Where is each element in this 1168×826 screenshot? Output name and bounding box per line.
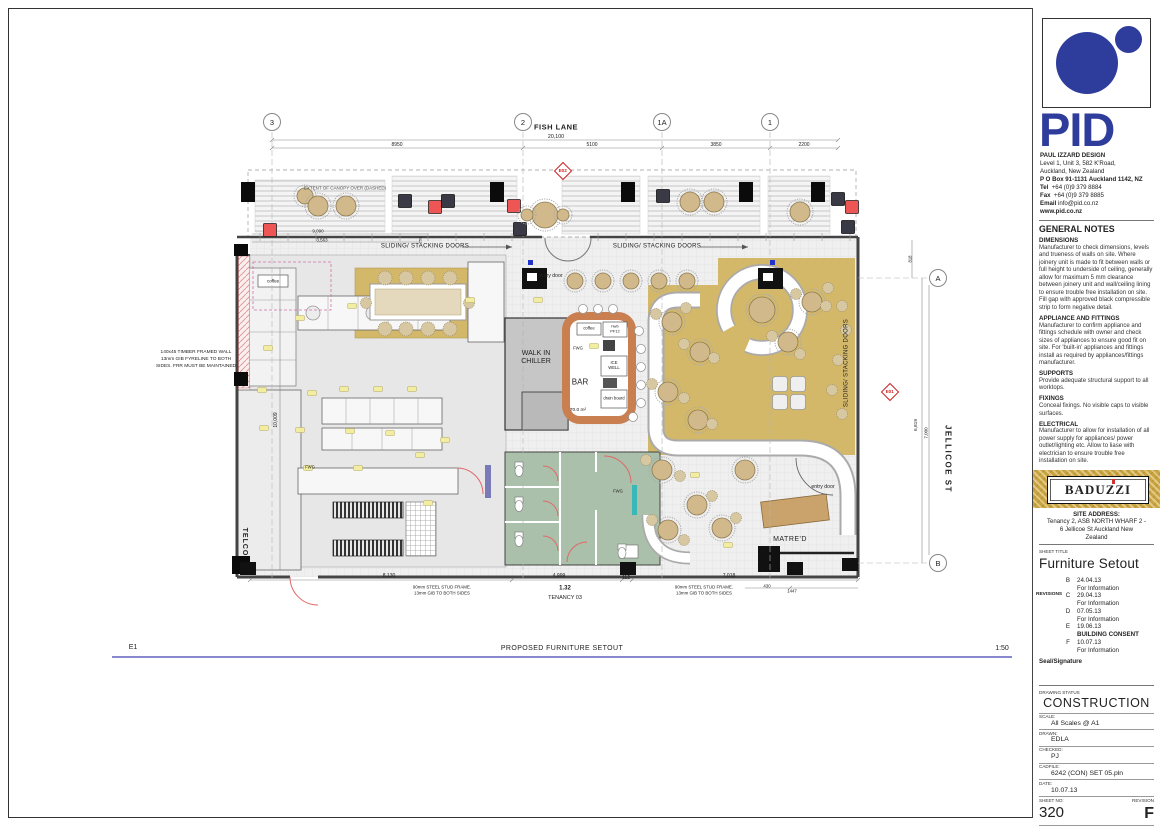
table: [802, 292, 822, 312]
toilet: [618, 548, 626, 559]
fwg-label-2: FWG: [305, 466, 315, 471]
tenancy-name: TENANCY 03: [548, 595, 582, 601]
equipment-tag: [441, 438, 450, 443]
chair: [421, 322, 435, 336]
equipment-tag: [416, 453, 425, 458]
entry-door-label-2: entry door: [810, 484, 836, 490]
seal-label: Seal/Signature: [1033, 654, 1160, 666]
hwb-label: hwb PF12: [607, 324, 624, 333]
grid-bubble-a: A: [929, 269, 947, 287]
stool-red: [264, 224, 277, 237]
stool-dark: [399, 195, 412, 208]
equipment-tag: [308, 391, 317, 396]
telco-label: TELCO: [240, 528, 248, 557]
table: [336, 196, 356, 216]
equipment-tag: [590, 344, 599, 349]
chair: [679, 339, 690, 350]
meta-cadfile: CADFILE:6242 (CON) SET 05.pln: [1039, 763, 1154, 780]
equipment-tag: [691, 473, 700, 478]
drain-board-label: drain board: [603, 397, 625, 402]
fwg-label-3: FWG: [613, 490, 623, 495]
grid-bubble-1: 1: [761, 113, 779, 131]
stool-dark: [442, 195, 455, 208]
dim-bottom-2: 4,999: [553, 574, 566, 580]
revisions-label: REVISIONS: [1036, 592, 1062, 598]
firm-details: PAUL IZZARD DESIGN Level 1, Unit 3, 582 …: [1033, 151, 1160, 216]
table: [658, 382, 678, 402]
grid-bubble-2: 2: [514, 113, 532, 131]
sliding-doors-label-2: SLIDING/ STACKING DOORS: [613, 243, 701, 250]
dim-top-seg2: 5100: [586, 143, 597, 149]
equipment-tag: [354, 466, 363, 471]
revisions: REVISIONS B24.04.13For Information C29.0…: [1033, 575, 1160, 655]
equipment-tag: [296, 428, 305, 433]
stool-red: [508, 200, 521, 213]
entry-door-label-1: entry door: [538, 273, 564, 279]
chair: [791, 289, 802, 300]
revision-row: D07.05.13For Information: [1059, 608, 1156, 624]
table: [521, 209, 533, 221]
stool-dark: [514, 223, 527, 236]
coffee-label-bar: coffee: [583, 327, 594, 332]
equipment-tag: [466, 298, 475, 303]
bar-area-label: 70.0 m²: [570, 408, 586, 414]
dim-overall-top: 20,100: [548, 134, 564, 140]
chair: [707, 491, 718, 502]
firm-name: PAUL IZZARD DESIGN: [1040, 152, 1153, 160]
column: [621, 182, 635, 202]
divider: [1039, 220, 1154, 221]
chair: [731, 513, 742, 524]
stool-dark: [842, 221, 855, 234]
square-seat: [773, 395, 788, 410]
dim-right-a: 818: [909, 256, 914, 263]
wall-marker: [770, 260, 775, 265]
table: [687, 495, 707, 515]
seal-space: [1033, 666, 1160, 682]
column: [739, 182, 753, 202]
square-seat: [791, 395, 806, 410]
note-body: Manufacturer to allow for installation o…: [1039, 428, 1154, 466]
chair: [399, 322, 413, 336]
stool-dark: [832, 193, 845, 206]
chair: [767, 331, 778, 342]
table: [651, 273, 667, 289]
chair: [647, 379, 658, 390]
coffee-label-kitchen: coffee: [267, 278, 279, 283]
pid-logo-icon: [1042, 18, 1151, 108]
note-heading: APPLIANCE AND FITTINGS: [1039, 315, 1154, 323]
chair: [709, 353, 720, 364]
chair: [823, 283, 834, 294]
dim-inner-small: 250: [419, 237, 424, 244]
chair: [647, 515, 658, 526]
note-heading: ELECTRICAL: [1039, 421, 1154, 429]
site-address-label: SITE ADDRESS:: [1039, 511, 1154, 519]
drawing-sheet: 3 2 1A 1 A B E02 E01 FISH LANE 20,100 89…: [0, 0, 1168, 826]
stool-red: [429, 201, 442, 214]
square-seat: [791, 377, 806, 392]
table: [778, 332, 798, 352]
bar-stool: [637, 363, 646, 372]
column: [240, 562, 256, 575]
revision-row: C29.04.13For Information: [1059, 592, 1156, 608]
toilet: [515, 466, 523, 477]
sliding-doors-label-1: SLIDING/ STACKING DOORS: [381, 243, 469, 250]
bar-stool: [629, 413, 638, 422]
bar-stool: [635, 327, 644, 336]
table: [712, 518, 732, 538]
chair: [827, 385, 838, 396]
equipment-tag: [724, 543, 733, 548]
tenancy-number: 1.32: [559, 585, 571, 592]
divider: [1039, 544, 1154, 545]
firm-tel: Tel +64 (0)9 379 8884: [1040, 184, 1153, 192]
site-address: SITE ADDRESS: Tenancy 2, ASB NORTH WHARF…: [1033, 508, 1160, 541]
square-seat: [773, 377, 788, 392]
steel-stud-note-2a: 90mm STEEL STUD FRAME.: [675, 584, 733, 589]
general-notes: GENERAL NOTES DIMENSIONS Manufacturer to…: [1033, 224, 1160, 466]
timber-wall-note-2: 13mm GIB FYRELINE TO BOTH: [161, 357, 231, 363]
column: [811, 182, 825, 202]
dim-bottom-1: 8,130: [383, 574, 396, 580]
drawing-ref: E1: [129, 644, 138, 652]
site-address-line: Zealand: [1039, 534, 1154, 542]
chair: [837, 301, 848, 312]
stool-red: [846, 201, 859, 214]
table: [690, 342, 710, 362]
matred-label: MATRE'D: [773, 536, 807, 544]
column: [241, 182, 255, 202]
table: [567, 273, 583, 289]
chair: [443, 322, 457, 336]
walk-in-chiller-label: WALK IN CHILLER: [507, 350, 565, 367]
equipment-tag: [408, 387, 417, 392]
site-address-line: 6 Jellicoe St Auckland New: [1039, 526, 1154, 534]
equipment-tag: [260, 426, 269, 431]
general-notes-title: GENERAL NOTES: [1039, 224, 1154, 235]
bar-stool: [594, 305, 603, 314]
steel-stud-note-2b: 13mm GIB TO BOTH SIDES: [676, 590, 732, 595]
chair: [681, 303, 692, 314]
meta-checked: CHECKED:PJ: [1039, 746, 1154, 763]
chair: [821, 301, 832, 312]
dim-top-seg1: 8950: [391, 143, 402, 149]
table: [662, 312, 682, 332]
divider: [1039, 685, 1154, 686]
dim-right-c: 7,000: [923, 427, 928, 438]
sheet-title-label: SHEET TITLE: [1033, 548, 1160, 555]
steel-stud-note-1a: 90mm STEEL STUD FRAME.: [413, 584, 471, 589]
note-heading: SUPPORTS: [1039, 370, 1154, 378]
canopy-note: EXTENT OF CANOPY OVER (DASHED): [304, 185, 386, 190]
street-label-fish-lane: FISH LANE: [534, 124, 578, 133]
timber-wall-note-3: SIDES. FRR MUST BE MAINTAINED: [156, 364, 236, 370]
ice-well-label: ICE WELL: [605, 361, 623, 371]
equipment-tag: [346, 429, 355, 434]
table: [679, 273, 695, 289]
baduzzi-logo-band: BADUZZI: [1033, 470, 1160, 508]
chair: [833, 355, 844, 366]
title-block: PID PAUL IZZARD DESIGN Level 1, Unit 3, …: [1032, 8, 1160, 818]
chair: [443, 271, 457, 285]
status-label: DRAWING STATUS: [1033, 689, 1160, 696]
equipment-tag: [296, 316, 305, 321]
wall-marker: [528, 260, 533, 265]
site-address-line: Tenancy 2, ASB NORTH WHARF 2 -: [1039, 518, 1154, 526]
equipment-tag: [264, 346, 273, 351]
chair: [399, 271, 413, 285]
titlebar-rule: [112, 656, 1012, 658]
chair: [837, 409, 848, 420]
chair: [378, 322, 392, 336]
pid-logo-text: PID: [1033, 108, 1160, 151]
fwg-label-1: FWG: [573, 347, 583, 352]
baduzzi-logo: BADUZZI: [1047, 476, 1149, 504]
drawing-title: PROPOSED FURNITURE SETOUT: [501, 645, 623, 653]
table: [790, 202, 810, 222]
chair: [707, 419, 718, 430]
drawing-status: CONSTRUCTION: [1033, 696, 1160, 713]
sheet-number-row: SHEET NO:320 REVISIONF: [1039, 796, 1154, 825]
bar-label: BAR: [572, 377, 588, 386]
column: [620, 562, 636, 575]
table: [652, 460, 672, 480]
chair: [795, 349, 806, 360]
grid-bubble-1a: 1A: [653, 113, 671, 131]
revision-row: F10.07.13For Information: [1059, 639, 1156, 655]
dim-right-b: 6,819: [914, 419, 920, 431]
equipment-tag: [374, 387, 383, 392]
equipment-tag: [424, 501, 433, 506]
table: [623, 273, 639, 289]
firm-web: www.pid.co.nz: [1040, 208, 1153, 216]
equipment-tag: [386, 431, 395, 436]
revision-row: B24.04.13For Information: [1059, 577, 1156, 593]
dim-bottom-4: 7,018: [723, 574, 736, 580]
grid-bubble-3: 3: [263, 113, 281, 131]
dim-top-seg4: 2200: [798, 143, 809, 149]
dim-top-seg3: 3850: [710, 143, 721, 149]
table: [704, 192, 724, 212]
dim-bottom-3: 112: [622, 576, 630, 582]
dim-bottom-6: 1447: [787, 588, 797, 593]
firm-addr3: P O Box 91-1131 Auckland 1142, NZ: [1040, 176, 1153, 184]
note-heading: DIMENSIONS: [1039, 237, 1154, 245]
table: [308, 196, 328, 216]
street-label-jellicoe: JELLICOE ST: [943, 425, 952, 493]
bar-stool: [637, 345, 646, 354]
bar-stool: [609, 305, 618, 314]
table: [735, 460, 755, 480]
firm-fax: Fax +64 (0)9 379 8885: [1040, 192, 1153, 200]
drawing-scale: 1:50: [995, 645, 1009, 653]
toilet: [515, 536, 523, 547]
chair: [679, 393, 690, 404]
communal-table: [370, 284, 466, 320]
floor-plan: 3 2 1A 1 A B E02 E01 FISH LANE 20,100 89…: [0, 0, 1032, 826]
column: [787, 562, 803, 575]
table: [658, 520, 678, 540]
table: [688, 410, 708, 430]
steel-stud-note-1b: 13mm GIB TO BOTH SIDES: [414, 590, 470, 595]
sheet-number: 320: [1039, 804, 1064, 823]
equipment-tag: [340, 387, 349, 392]
bar-stool: [579, 305, 588, 314]
chair: [675, 471, 686, 482]
bar-stool: [637, 381, 646, 390]
chair: [361, 298, 372, 309]
toilet: [515, 501, 523, 512]
note-body: Manufacturer to confirm appliance and fi…: [1039, 323, 1154, 368]
equipment-tag: [348, 304, 357, 309]
firm-addr1: Level 1, Unit 3, 582 K'Road,: [1040, 160, 1153, 168]
note-heading: FIXINGS: [1039, 395, 1154, 403]
table: [595, 273, 611, 289]
chair: [378, 271, 392, 285]
table: [557, 209, 569, 221]
sheet-title: Furniture Setout: [1033, 555, 1160, 575]
dim-inner-b: 3,563: [316, 237, 327, 242]
note-body: Conceal fixings. No visible caps to visi…: [1039, 403, 1154, 418]
chair: [651, 309, 662, 320]
baduzzi-red-accent: [1112, 479, 1115, 484]
timber-wall-note-1: 140x45 TIMBER FRAMED WALL: [161, 350, 232, 356]
revision-letter: F: [1132, 804, 1154, 824]
sliding-doors-label-3: SLIDING/ STACKING DOORS: [843, 319, 850, 407]
table: [749, 297, 775, 323]
dim-bottom-5: 430: [763, 583, 770, 588]
chair: [641, 455, 652, 466]
column: [842, 558, 858, 571]
bar-stool: [637, 399, 646, 408]
firm-email: Email info@pid.co.nz: [1040, 200, 1153, 208]
walk-in-chiller: [505, 318, 568, 430]
meta-scale: SCALE:All Scales @ A1: [1039, 713, 1154, 730]
firm-addr2: Auckland, New Zealand: [1040, 168, 1153, 176]
equipment-tag: [258, 388, 267, 393]
chair: [421, 271, 435, 285]
meta-date: DATE:10.07.13: [1039, 779, 1154, 796]
equipment-tag: [534, 298, 543, 303]
dim-left-height: 10,009: [274, 412, 280, 427]
note-body: Manufacturer to check dimensions, levels…: [1039, 245, 1154, 313]
stool-dark: [657, 190, 670, 203]
note-body: Provide adequate structural support to a…: [1039, 378, 1154, 393]
dim-inner-a: 9,090: [312, 228, 323, 233]
revision-row: E19.06.13BUILDING CONSENT: [1059, 623, 1156, 639]
table: [680, 192, 700, 212]
chair: [679, 535, 690, 546]
meta-drawn: DRAWN:EDLA: [1039, 729, 1154, 746]
column: [490, 182, 504, 202]
fire-rated-wall: [239, 256, 250, 388]
grid-bubble-b: B: [929, 554, 947, 572]
